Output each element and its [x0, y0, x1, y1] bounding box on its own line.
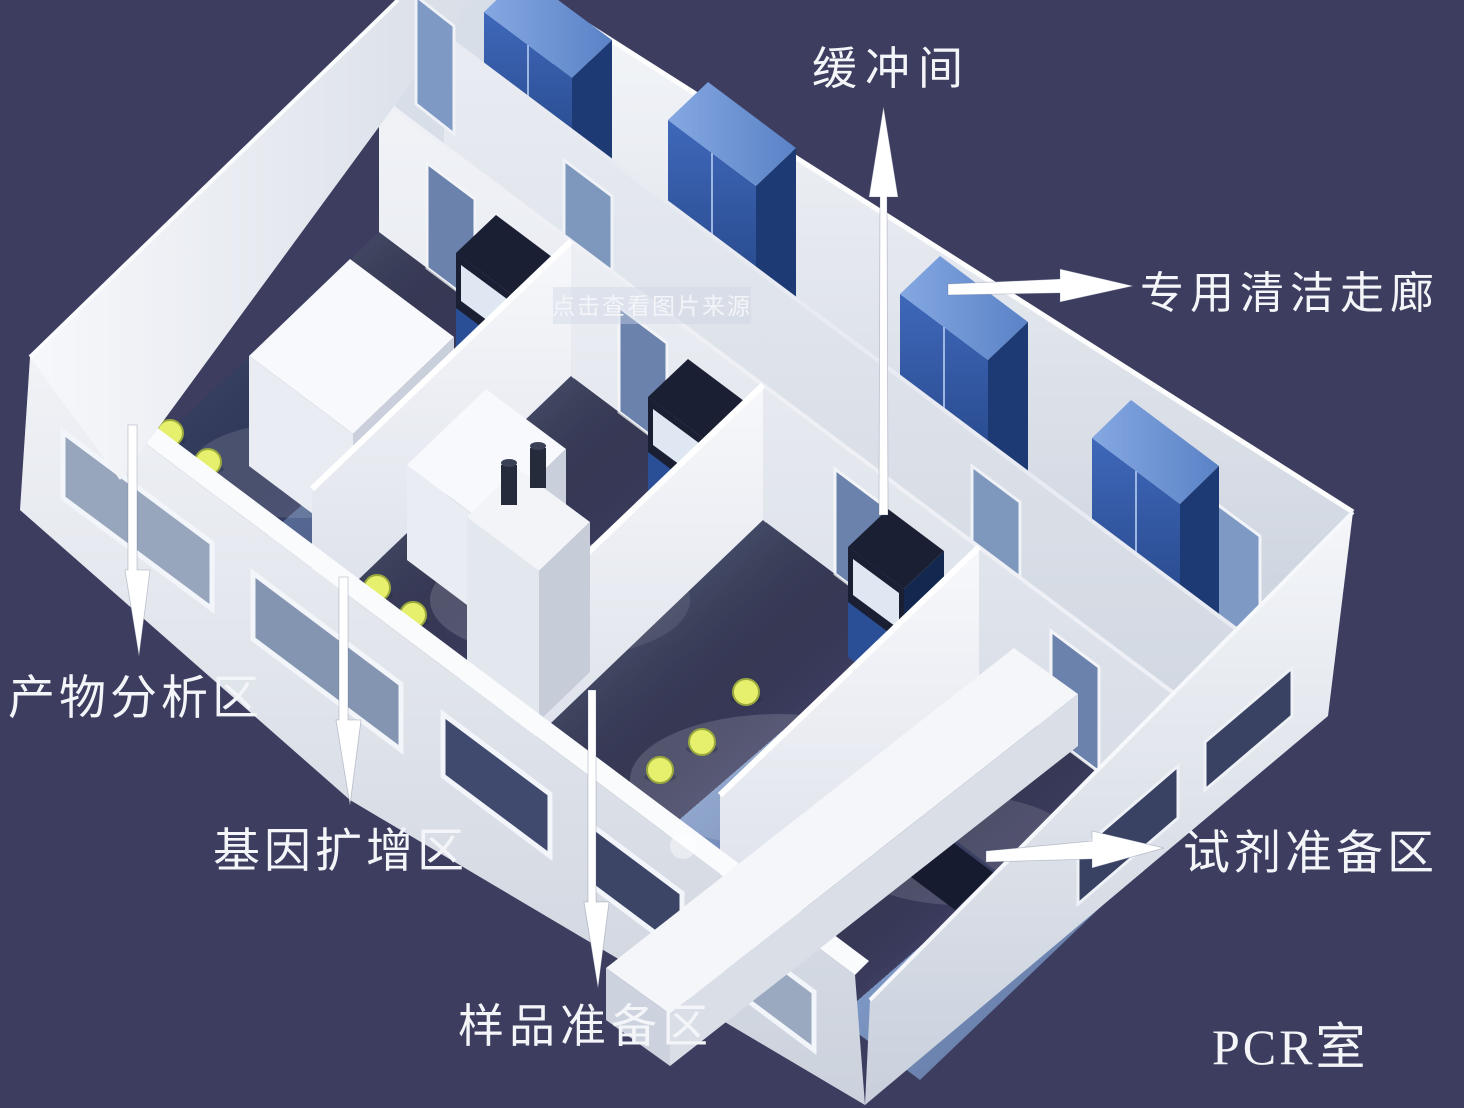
label-clean-corridor: 专用清洁走廊 — [1140, 269, 1440, 318]
hood-stack-cap — [530, 442, 546, 450]
label-buffer-room: 缓冲间 — [812, 44, 971, 94]
light-flare — [670, 833, 696, 859]
label-sample-preparation: 样品准备区 — [458, 1001, 713, 1052]
hood-stack-cap — [501, 459, 517, 467]
pcr-lab-diagram: 缓冲间 专用清洁走廊 产物分析区 基因扩增区 样品准备区 试剂准备区 PCR室 … — [0, 0, 1464, 1108]
stool — [733, 679, 759, 705]
hood-stack — [501, 465, 517, 505]
label-reagent-preparation: 试剂准备区 — [1183, 828, 1438, 880]
hood-stack — [530, 448, 546, 488]
label-gene-amplification: 基因扩增区 — [213, 826, 468, 878]
lab-3d-scene: 缓冲间 专用清洁走廊 产物分析区 基因扩增区 样品准备区 试剂准备区 PCR室 … — [0, 0, 1464, 1108]
watermark[interactable]: 点击查看图片来源 — [552, 287, 752, 324]
label-pcr-room: PCR室 — [1212, 1019, 1369, 1075]
label-product-analysis: 产物分析区 — [8, 673, 263, 725]
stool — [647, 757, 673, 783]
watermark-text[interactable]: 点击查看图片来源 — [552, 293, 752, 319]
stool — [689, 729, 715, 755]
